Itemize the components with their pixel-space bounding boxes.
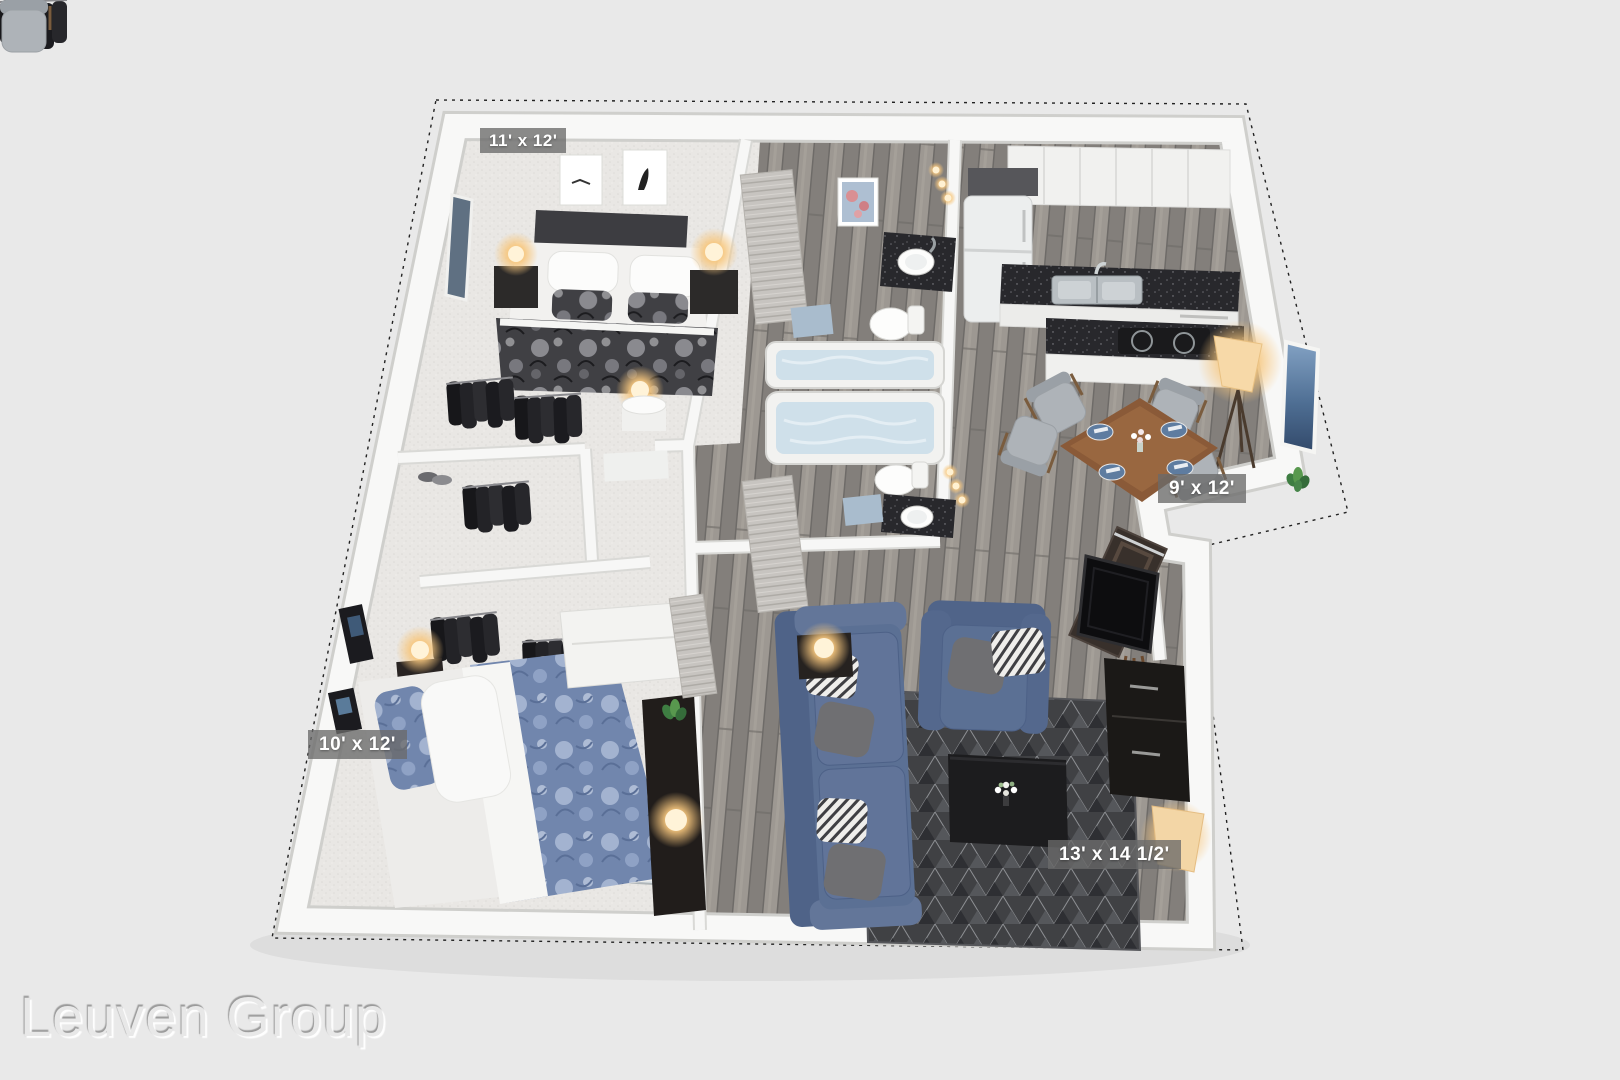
armchair (917, 600, 1051, 734)
bathtub-icon (766, 392, 944, 464)
room-dimension-label-dining: 9' x 12' (1158, 474, 1246, 503)
toilet-icon (875, 465, 917, 495)
tv-icon (1078, 556, 1158, 652)
bathtub-icon (766, 342, 944, 388)
throw-pillow-icon (990, 627, 1047, 678)
nightstand-icon (690, 270, 738, 314)
window-icon (446, 195, 472, 300)
cabinet-over-fridge (968, 168, 1038, 196)
floor-plan-canvas: 11' x 12' 9' x 12' 10' x 12' 13' x 14 1/… (0, 0, 1620, 1080)
window-icon (1282, 342, 1318, 452)
bath-mat (843, 494, 884, 526)
throw-pillow-icon (822, 842, 887, 902)
watermark-logo: Leuven Group (20, 984, 387, 1049)
toilet-icon (870, 308, 912, 340)
floor-plan-illustration (0, 0, 1620, 1080)
dining-chair-icon (0, 0, 50, 52)
floor-mat (603, 450, 668, 481)
bath-mat (791, 304, 834, 338)
upper-cabinets (1008, 146, 1230, 208)
room-dimension-label-bedroom-2: 10' x 12' (308, 730, 407, 759)
room-dimension-label-bedroom-1: 11' x 12' (480, 128, 566, 153)
coffee-table (948, 754, 1068, 848)
room-dimension-label-living: 13' x 14 1/2' (1048, 840, 1181, 869)
throw-pillow-icon (816, 797, 868, 844)
wall-art-icon (838, 178, 878, 226)
tv-console (1104, 658, 1190, 802)
